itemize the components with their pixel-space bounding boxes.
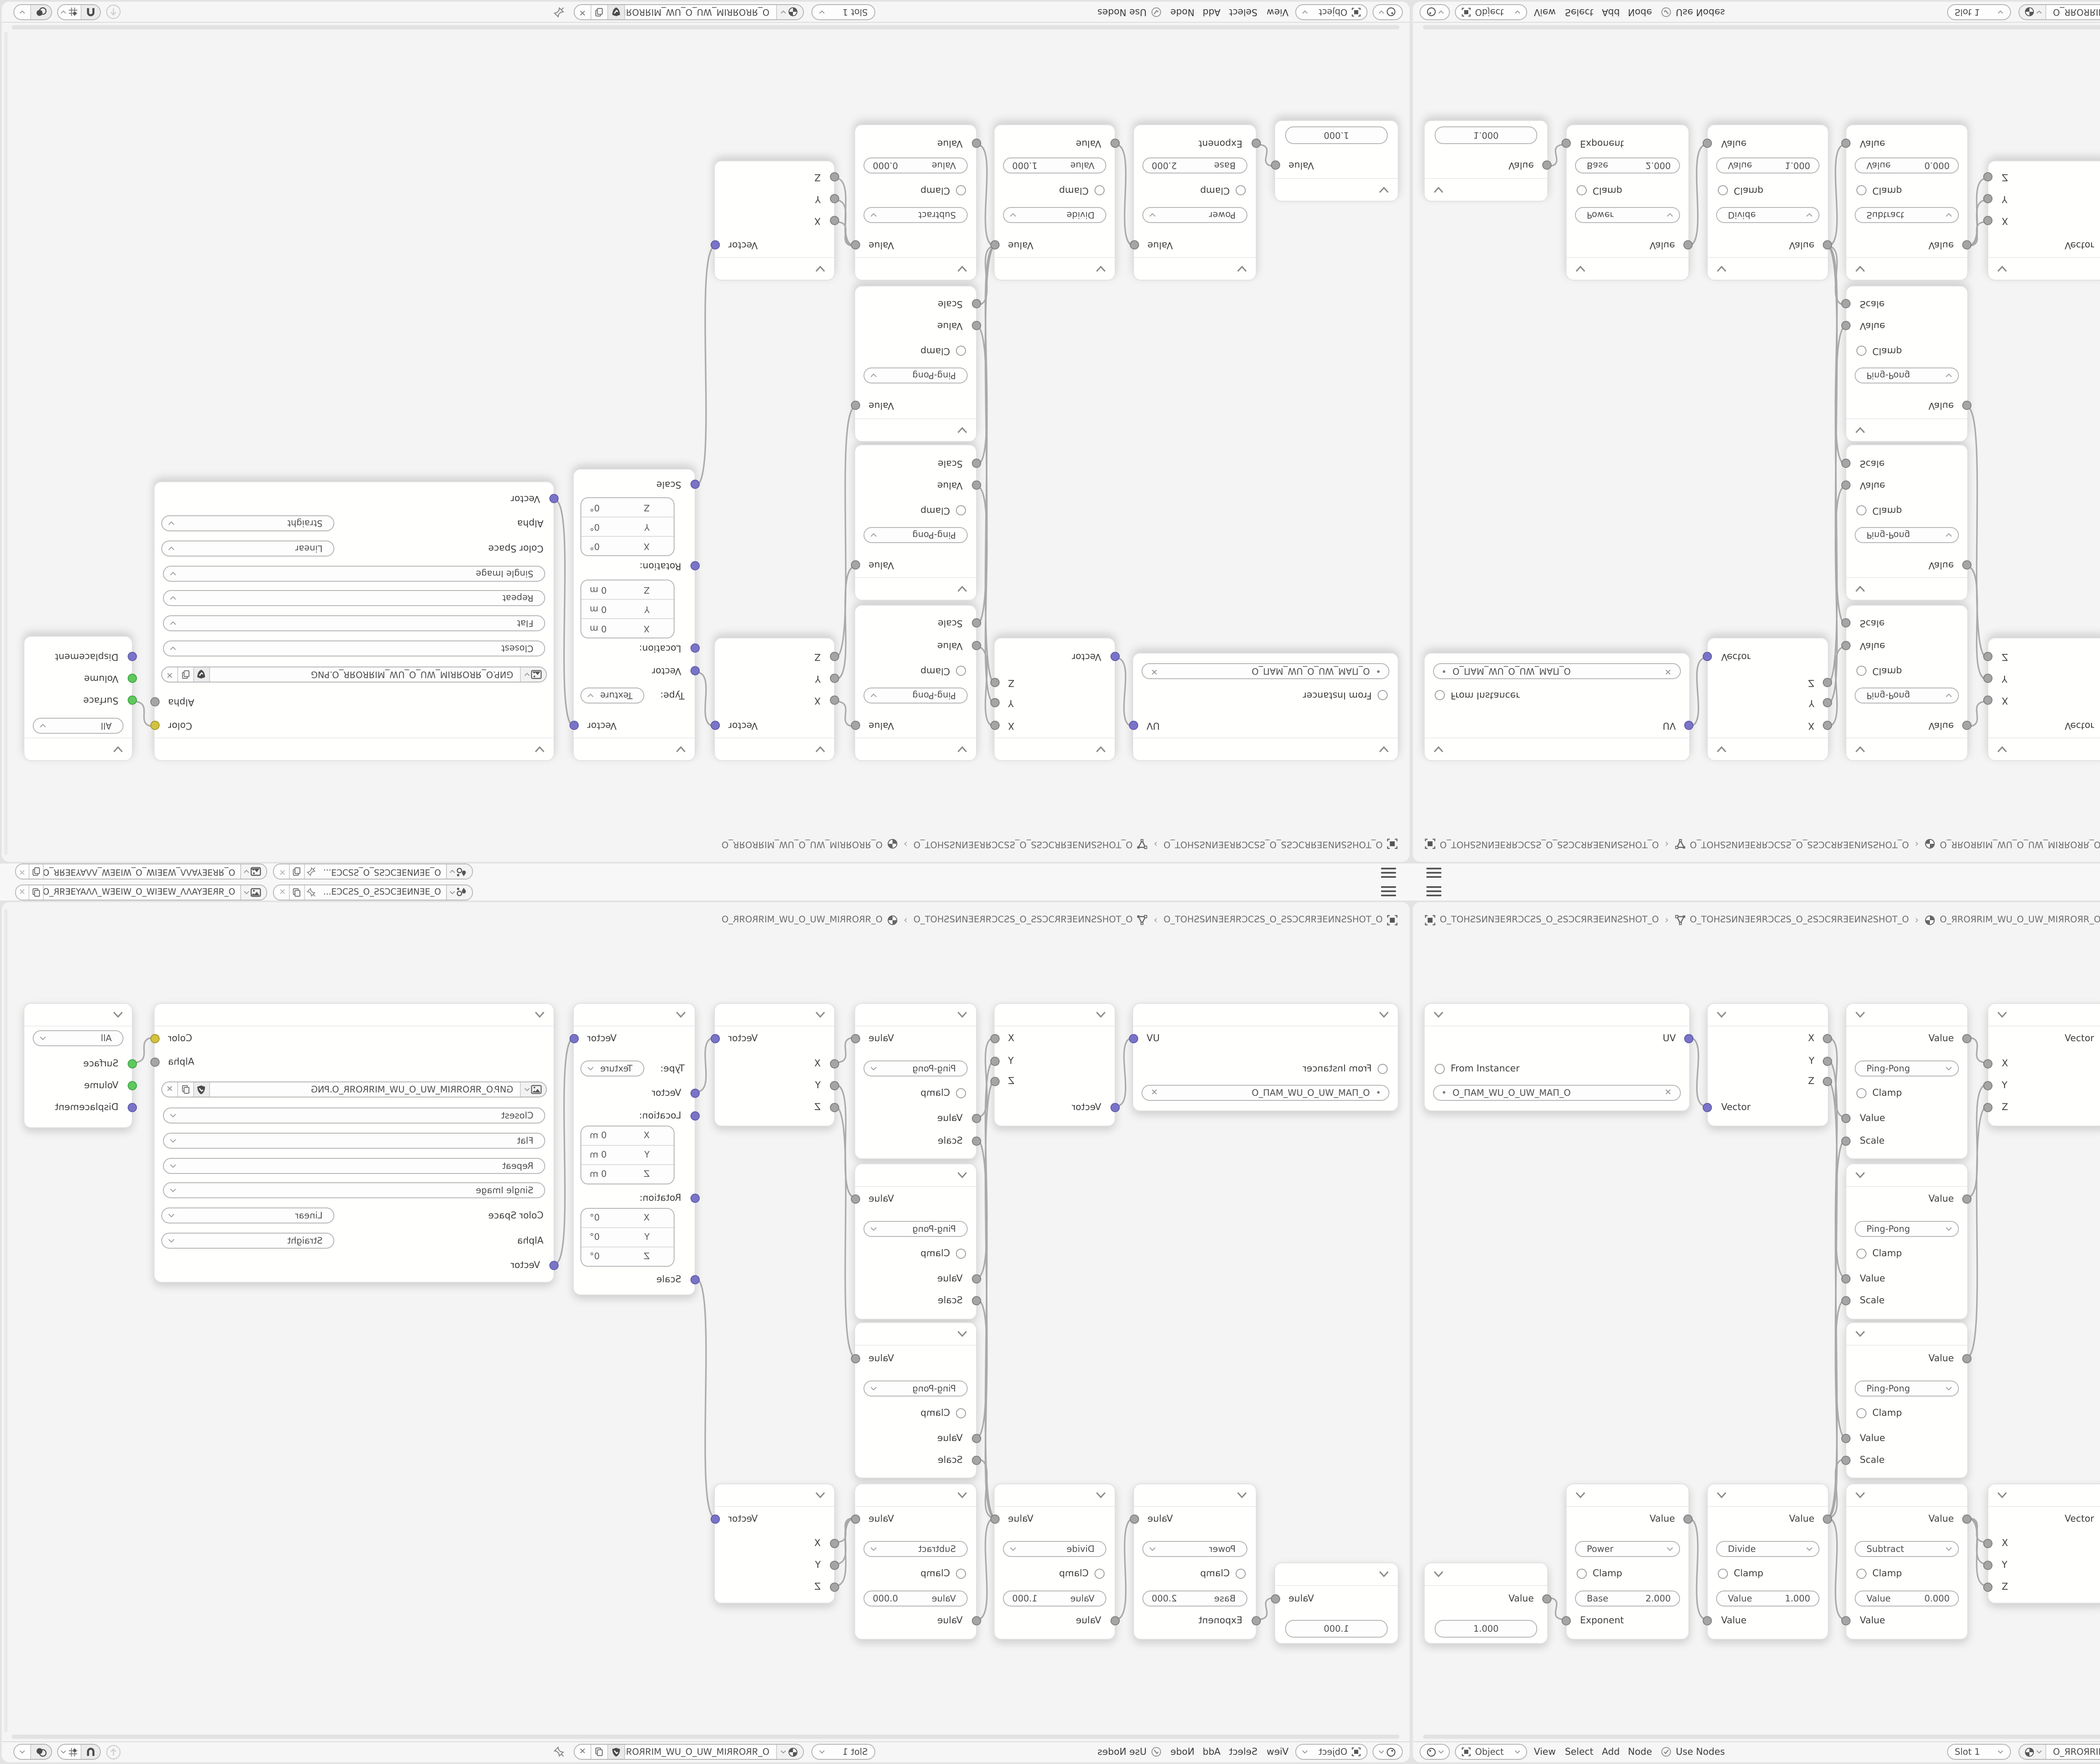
- breadcrumb-object[interactable]: O_TOHƧSИNƎEЯRƆCƧS_O_ƧSƆCЯRƎEИNƧSHOT_O: [913, 914, 1148, 925]
- node-header[interactable]: [155, 1004, 554, 1026]
- node-header[interactable]: [995, 1484, 1115, 1507]
- uv-map-node[interactable]: UVFrom Instancer•O_ΠAM_WU_O_UW_MAΠ_O✕: [1424, 653, 1690, 761]
- separate-xyz-node[interactable]: XYZVector: [1707, 1003, 1829, 1126]
- separate-xyz-node[interactable]: XYZVector: [994, 1003, 1116, 1126]
- material-icon[interactable]: [776, 1745, 803, 1759]
- unlink-icon[interactable]: ✕: [162, 667, 178, 682]
- vector-input-socket[interactable]: [549, 1260, 559, 1270]
- collapse-chevron-icon[interactable]: [957, 265, 968, 272]
- vector-output-socket[interactable]: [711, 241, 720, 250]
- value-output-socket[interactable]: [851, 1034, 860, 1043]
- menu-select[interactable]: Select: [1229, 1744, 1257, 1760]
- from-instancer-radio[interactable]: From Instancer: [1435, 1063, 1520, 1074]
- material-icon[interactable]: [2019, 5, 2046, 19]
- material-output-node[interactable]: AllSurfaceVolumeDisplacement: [24, 636, 133, 761]
- node-header[interactable]: [1567, 1484, 1688, 1507]
- radio-circle-icon[interactable]: [1856, 666, 1866, 676]
- pin-icon[interactable]: [305, 865, 318, 879]
- value-output-socket[interactable]: [1962, 1194, 1971, 1203]
- mode-dropdown[interactable]: Object: [1295, 1744, 1368, 1760]
- x-input-socket[interactable]: [1983, 216, 1992, 226]
- value-field[interactable]: 1.000: [1285, 1620, 1388, 1638]
- enum-dropdown[interactable]: Subtract: [864, 207, 968, 223]
- scale-input-socket[interactable]: [690, 480, 700, 489]
- scale-input-socket[interactable]: [1841, 619, 1851, 628]
- uv-map-node[interactable]: UVFrom Instancer•O_ΠAM_WU_O_UW_MAΠ_O✕: [1424, 1003, 1690, 1111]
- value-input-socket[interactable]: [1703, 1616, 1712, 1625]
- scene-selector[interactable]: O_ƎEИNƎEƆCƧS_O_ƧSƆCƎ... ✕: [273, 884, 473, 900]
- location-input-socket[interactable]: [690, 1111, 700, 1120]
- value-output-socket[interactable]: [990, 241, 1000, 250]
- math-power-node[interactable]: ValuePowerClampBase2.000Exponent: [1133, 124, 1257, 281]
- collapse-chevron-icon[interactable]: [1095, 265, 1106, 272]
- collapse-chevron-icon[interactable]: [957, 1172, 968, 1179]
- value-node[interactable]: Value1.000: [1424, 1562, 1548, 1644]
- image-icon[interactable]: [520, 1082, 546, 1097]
- value-input-socket[interactable]: [1841, 481, 1851, 490]
- node-header[interactable]: [1708, 1004, 1828, 1026]
- math-pingpong-node-1[interactable]: ValuePing-PongClampValueScale: [854, 605, 977, 761]
- value-value-field[interactable]: Value0.000: [1855, 1591, 1959, 1606]
- node-header[interactable]: [855, 1323, 976, 1346]
- shield-icon[interactable]: [608, 5, 625, 19]
- collapse-chevron-icon[interactable]: [1433, 1011, 1444, 1018]
- enum-dropdown[interactable]: Single Image: [163, 566, 545, 582]
- uv-map-selector[interactable]: •O_ΠAM_WU_O_UW_MAΠ_O✕: [1433, 663, 1681, 679]
- math-pingpong-node-1[interactable]: ValuePing-PongClampValueScale: [1845, 605, 1968, 761]
- axis-value-field[interactable]: Y0°: [581, 517, 674, 537]
- x-input-socket[interactable]: [830, 216, 839, 226]
- radio-circle-icon[interactable]: [1856, 346, 1866, 356]
- value-input-socket[interactable]: [972, 641, 981, 651]
- collapse-chevron-icon[interactable]: [1433, 1571, 1444, 1578]
- node-header[interactable]: [1846, 1164, 1967, 1187]
- radio-circle-icon[interactable]: [1856, 1248, 1866, 1258]
- image-icon[interactable]: [520, 667, 546, 682]
- radio-circle-icon[interactable]: [1718, 1568, 1728, 1578]
- enum-dropdown[interactable]: Linear: [161, 541, 334, 556]
- node-header[interactable]: [1134, 257, 1256, 280]
- radio-circle-icon[interactable]: [956, 1408, 966, 1418]
- slot-dropdown[interactable]: Slot 1: [811, 1744, 875, 1760]
- menu-icon[interactable]: [1426, 886, 1441, 896]
- menu-select[interactable]: Select: [1565, 1744, 1593, 1760]
- material-output-node[interactable]: AllSurfaceVolumeDisplacement: [24, 1003, 133, 1128]
- snap-grid-icon[interactable]: [58, 1747, 81, 1757]
- node-header[interactable]: [1275, 178, 1398, 201]
- value-input-socket[interactable]: [972, 139, 981, 148]
- mode-dropdown[interactable]: Object: [1295, 4, 1368, 20]
- value-input-socket[interactable]: [972, 481, 981, 490]
- value-output-socket[interactable]: [1683, 241, 1693, 250]
- collapse-chevron-icon[interactable]: [1378, 1571, 1389, 1578]
- axis-value-field[interactable]: Z0 m: [581, 580, 674, 600]
- horizontal-scrollbar[interactable]: [12, 25, 1399, 29]
- enum-dropdown[interactable]: Flat: [163, 1133, 545, 1149]
- enum-dropdown[interactable]: Ping-Pong: [864, 1060, 968, 1076]
- enum-dropdown[interactable]: Straight: [161, 1233, 334, 1249]
- node-header[interactable]: [1708, 738, 1828, 760]
- enum-dropdown[interactable]: Ping-Pong: [864, 688, 968, 703]
- vertical-scrollbar[interactable]: [4, 909, 8, 1732]
- collapse-chevron-icon[interactable]: [1997, 265, 2008, 272]
- clamp-radio[interactable]: Clamp: [1059, 185, 1105, 196]
- material-icon[interactable]: [776, 5, 803, 19]
- node-header[interactable]: [1133, 738, 1398, 760]
- menu-add[interactable]: Add: [1602, 4, 1620, 20]
- value-input-socket[interactable]: [1110, 139, 1120, 148]
- scale-input-socket[interactable]: [972, 1296, 981, 1305]
- x-output-socket[interactable]: [990, 721, 1000, 730]
- node-header[interactable]: [1846, 577, 1967, 600]
- math-subtract-node[interactable]: ValueSubtractClampValue0.000Value: [854, 1483, 977, 1640]
- collapse-chevron-icon[interactable]: [815, 1492, 826, 1499]
- parent-tree-icon[interactable]: [106, 4, 121, 20]
- enum-dropdown[interactable]: All: [33, 1030, 123, 1046]
- breadcrumb-material[interactable]: O_ЯROЯRIM_WU_O_UW_MIЯROЯR_O: [1925, 914, 2100, 925]
- node-header[interactable]: [1988, 1484, 2100, 1507]
- value-output-socket[interactable]: [851, 1194, 860, 1203]
- editor-type-button[interactable]: [1420, 1744, 1450, 1760]
- collapse-chevron-icon[interactable]: [1378, 186, 1389, 193]
- enum-dropdown[interactable]: Subtract: [1855, 207, 1959, 223]
- enum-dropdown[interactable]: Ping-Pong: [1855, 527, 1959, 543]
- vector-input-socket[interactable]: [1110, 1102, 1120, 1112]
- node-header[interactable]: [1846, 418, 1967, 441]
- vector-output-socket[interactable]: [570, 721, 579, 730]
- breadcrumb-object[interactable]: O_TOHƧSИNƎEЯRƆCƧS_O_ƧSƆCЯRƎEИNƧSHOT_O: [913, 839, 1148, 850]
- value-output-socket[interactable]: [1271, 1594, 1280, 1603]
- z-input-socket[interactable]: [1983, 652, 1992, 661]
- collapse-chevron-icon[interactable]: [957, 1331, 968, 1337]
- math-power-node[interactable]: ValuePowerClampBase2.000Exponent: [1566, 1483, 1689, 1640]
- xyz-value-stack[interactable]: X0°Y0°Z0°: [580, 1208, 675, 1267]
- vector-output-socket[interactable]: [570, 1034, 579, 1043]
- enum-dropdown[interactable]: Repeat: [163, 590, 545, 606]
- copy-icon[interactable]: [290, 865, 305, 879]
- math-divide-node[interactable]: ValueDivideClampValue1.000Value: [994, 124, 1116, 281]
- value-output-socket[interactable]: [851, 721, 860, 730]
- y-input-socket[interactable]: [830, 674, 839, 683]
- value-output-socket[interactable]: [1271, 161, 1280, 170]
- radio-circle-icon[interactable]: [1435, 1063, 1445, 1074]
- node-header[interactable]: [574, 738, 695, 760]
- menu-view[interactable]: View: [1534, 1744, 1556, 1760]
- clamp-radio[interactable]: Clamp: [1856, 1087, 1902, 1098]
- value-value-field[interactable]: Value1.000: [1003, 157, 1106, 173]
- node-header[interactable]: [855, 738, 976, 760]
- uv-map-node[interactable]: UVFrom Instancer•O_ΠAM_WU_O_UW_MAΠ_O✕: [1132, 653, 1399, 761]
- node-header[interactable]: [24, 738, 132, 760]
- collapse-chevron-icon[interactable]: [1716, 265, 1727, 272]
- breadcrumb-material[interactable]: O_ЯROЯRIM_WU_O_UW_MIЯROЯR_O: [722, 914, 898, 925]
- clamp-radio[interactable]: Clamp: [921, 666, 966, 677]
- math-pingpong-node-3[interactable]: ValuePing-PongClampValueScale: [854, 1322, 977, 1478]
- menu-view[interactable]: View: [1267, 1744, 1289, 1760]
- clamp-radio[interactable]: Clamp: [921, 505, 966, 516]
- value-output-socket[interactable]: [1130, 241, 1139, 250]
- enum-dropdown[interactable]: Linear: [161, 1207, 334, 1223]
- radio-circle-icon[interactable]: [1095, 1568, 1105, 1578]
- collapse-chevron-icon[interactable]: [534, 1011, 545, 1018]
- from-instancer-radio[interactable]: From Instancer: [1303, 1063, 1388, 1074]
- radio-circle-icon[interactable]: [1435, 690, 1445, 701]
- use-nodes-checkbox[interactable]: Use Nodes: [1661, 1744, 1725, 1760]
- view-layer-selector[interactable]: O_ЯRƎEYAΛΛ_WƎEIW_O_WIƎEW_ΛΛAYƎEЯR_O ✕: [15, 864, 267, 880]
- collapse-chevron-icon[interactable]: [1716, 1492, 1727, 1499]
- clear-icon[interactable]: ✕: [1142, 1088, 1158, 1097]
- node-header[interactable]: [1708, 1484, 1828, 1507]
- value-field[interactable]: 1.000: [1435, 1620, 1537, 1638]
- enum-dropdown[interactable]: Divide: [1716, 1541, 1819, 1557]
- radio-circle-icon[interactable]: [956, 666, 966, 676]
- axis-value-field[interactable]: Z0°: [581, 1247, 674, 1266]
- overlap-circles-icon[interactable]: [30, 1745, 51, 1759]
- vertical-scrollbar[interactable]: [4, 32, 8, 855]
- node-header[interactable]: [1988, 738, 2100, 760]
- exponent-input-socket[interactable]: [1562, 139, 1571, 148]
- radio-circle-icon[interactable]: [1095, 186, 1105, 196]
- clamp-radio[interactable]: Clamp: [1059, 1568, 1105, 1579]
- menu-icon[interactable]: [1426, 868, 1441, 878]
- pin-icon[interactable]: [554, 4, 564, 20]
- editor-type-button[interactable]: [1373, 4, 1403, 20]
- view-layer-name[interactable]: O_ЯRƎEYAΛΛ_WƎEIW_O_WIƎEW_ΛΛAYƎEЯR_O: [44, 885, 240, 899]
- node-header[interactable]: [1846, 1323, 1967, 1346]
- node-header[interactable]: [995, 257, 1115, 280]
- shield-icon[interactable]: [608, 1745, 625, 1759]
- z-input-socket[interactable]: [830, 1582, 839, 1591]
- collapse-chevron-icon[interactable]: [1855, 1011, 1866, 1018]
- clear-icon[interactable]: ✕: [1664, 1088, 1680, 1097]
- unlink-icon[interactable]: ✕: [276, 865, 290, 879]
- shield-icon[interactable]: [194, 667, 210, 682]
- x-input-socket[interactable]: [1983, 696, 1992, 705]
- y-input-socket[interactable]: [1983, 1081, 1992, 1090]
- collapse-chevron-icon[interactable]: [1236, 1492, 1247, 1499]
- enum-dropdown[interactable]: Divide: [1003, 1541, 1106, 1557]
- enum-dropdown[interactable]: Ping-Pong: [1855, 367, 1959, 383]
- value-output-socket[interactable]: [990, 1514, 1000, 1523]
- enum-dropdown[interactable]: Ping-Pong: [864, 367, 968, 383]
- value-input-socket[interactable]: [972, 1616, 981, 1625]
- radio-circle-icon[interactable]: [1856, 1408, 1866, 1418]
- value-output-socket[interactable]: [851, 1354, 860, 1363]
- collapse-chevron-icon[interactable]: [534, 746, 545, 753]
- clamp-radio[interactable]: Clamp: [1856, 346, 1902, 357]
- node-header[interactable]: [995, 1004, 1115, 1026]
- material-datablock-selector[interactable]: O_ЯROЯRIM_WU_O_UW_MIЯROЯR_O ✕: [2019, 1744, 2100, 1760]
- from-instancer-radio[interactable]: From Instancer: [1435, 690, 1520, 701]
- math-power-node[interactable]: ValuePowerClampBase2.000Exponent: [1133, 1483, 1257, 1640]
- radio-circle-icon[interactable]: [1856, 1568, 1866, 1578]
- x-input-socket[interactable]: [830, 1538, 839, 1548]
- math-pingpong-node-2[interactable]: ValuePing-PongClampValueScale: [1845, 1163, 1968, 1320]
- collapse-chevron-icon[interactable]: [1997, 1011, 2008, 1018]
- scale-input-socket[interactable]: [1841, 1136, 1851, 1145]
- value-input-socket[interactable]: [1841, 1433, 1851, 1443]
- clamp-radio[interactable]: Clamp: [921, 1248, 966, 1259]
- copy-icon[interactable]: [591, 1745, 608, 1759]
- collapse-chevron-icon[interactable]: [1855, 585, 1866, 592]
- value-value-field[interactable]: Value0.000: [864, 1591, 968, 1606]
- surface-input-socket[interactable]: [128, 696, 137, 705]
- unlink-icon[interactable]: ✕: [16, 865, 29, 879]
- value-value-field[interactable]: Value1.000: [1716, 1591, 1819, 1606]
- mode-dropdown[interactable]: Object: [1455, 1744, 1527, 1760]
- slot-dropdown[interactable]: Slot 1: [811, 4, 875, 20]
- node-header[interactable]: [855, 418, 976, 441]
- collapse-chevron-icon[interactable]: [957, 1492, 968, 1499]
- node-header[interactable]: [995, 738, 1115, 760]
- math-pingpong-node-1[interactable]: ValuePing-PongClampValueScale: [854, 1003, 977, 1159]
- vector-input-socket[interactable]: [690, 667, 700, 676]
- scale-input-socket[interactable]: [972, 459, 981, 468]
- enum-dropdown[interactable]: All: [33, 718, 123, 734]
- breadcrumb-material[interactable]: O_ЯROЯRIM_WU_O_UW_MIЯROЯR_O: [722, 839, 898, 850]
- axis-value-field[interactable]: X0 m: [581, 619, 674, 638]
- z-input-socket[interactable]: [830, 652, 839, 661]
- scale-input-socket[interactable]: [1841, 299, 1851, 309]
- math-pingpong-node-2[interactable]: ValuePing-PongClampValueScale: [854, 1163, 977, 1320]
- value-output-socket[interactable]: [1962, 241, 1971, 250]
- radio-circle-icon[interactable]: [1378, 1063, 1388, 1074]
- scene-name[interactable]: O_ƎEИNƎEƆCƧS_O_ƧSƆCƎ...: [318, 885, 446, 899]
- collapse-chevron-icon[interactable]: [1433, 186, 1444, 193]
- collapse-chevron-icon[interactable]: [675, 1011, 686, 1018]
- collapse-chevron-icon[interactable]: [675, 746, 686, 753]
- volume-input-socket[interactable]: [128, 1081, 137, 1090]
- image-filename[interactable]: GИP.O_ЯROЯRIM_WU_O_UW_MIЯROЯR_O.PNG: [210, 667, 520, 682]
- horizontal-scrollbar[interactable]: [1423, 1735, 2100, 1739]
- z-output-socket[interactable]: [990, 678, 1000, 688]
- collapse-chevron-icon[interactable]: [1095, 1011, 1106, 1018]
- node-header[interactable]: [1988, 257, 2100, 280]
- clamp-radio[interactable]: Clamp: [1577, 1568, 1622, 1579]
- collapse-chevron-icon[interactable]: [1855, 1172, 1866, 1179]
- enum-dropdown[interactable]: Ping-Pong: [1855, 1221, 1959, 1237]
- vector-output-socket[interactable]: [711, 1034, 720, 1043]
- mode-dropdown[interactable]: Object: [1455, 4, 1527, 20]
- y-output-socket[interactable]: [1823, 698, 1832, 708]
- axis-value-field[interactable]: Y0 m: [581, 1145, 674, 1164]
- y-input-socket[interactable]: [1983, 674, 1992, 683]
- breadcrumb-object[interactable]: O_TOHƧSИNƎEЯRƆCƧS_O_ƧSƆCЯRƎEИNƧSHOT_O: [1675, 914, 1909, 925]
- editor-type-button[interactable]: [1420, 4, 1450, 20]
- enum-dropdown[interactable]: Ping-Pong: [864, 527, 968, 543]
- node-header[interactable]: [1988, 1004, 2100, 1026]
- node-header[interactable]: [1846, 1004, 1967, 1026]
- view-layer-name[interactable]: O_ЯRƎEYAΛΛ_WƎEIW_O_WIƎEW_ΛΛAYƎEЯR_O: [44, 865, 240, 879]
- collapse-chevron-icon[interactable]: [1236, 265, 1247, 272]
- value-value-field[interactable]: Value1.000: [1003, 1591, 1106, 1606]
- use-nodes-checkbox[interactable]: Use Nodes: [1097, 4, 1162, 20]
- combine-xyz-node-bottom[interactable]: VectorXYZ: [1987, 160, 2100, 281]
- node-header[interactable]: [1708, 257, 1828, 280]
- enum-dropdown[interactable]: Subtract: [864, 1541, 968, 1557]
- node-header[interactable]: [715, 257, 834, 280]
- view-layer-selector[interactable]: O_ЯRƎEYAΛΛ_WƎEIW_O_WIƎEW_ΛΛAYƎEЯR_O ✕: [15, 884, 267, 900]
- axis-value-field[interactable]: Y0 m: [581, 600, 674, 619]
- node-header[interactable]: [855, 1164, 976, 1187]
- enum-dropdown[interactable]: Power: [1142, 1541, 1247, 1557]
- mapping-node[interactable]: VectorType:TextureVectorLocation:X0 mY0 …: [573, 469, 696, 761]
- math-pingpong-node-3[interactable]: ValuePing-PongClampValueScale: [854, 286, 977, 442]
- value-input-socket[interactable]: [1841, 1113, 1851, 1123]
- rotation-input-socket[interactable]: [690, 1193, 700, 1202]
- scale-input-socket[interactable]: [972, 1455, 981, 1465]
- image-texture-node[interactable]: ColorAlphaGИP.O_ЯROЯRIM_WU_O_UW_MIЯROЯR_…: [154, 1003, 554, 1283]
- image-texture-node[interactable]: ColorAlphaGИP.O_ЯROЯRIM_WU_O_UW_MIЯROЯR_…: [154, 481, 554, 761]
- node-header[interactable]: [1425, 738, 1689, 760]
- scale-input-socket[interactable]: [972, 299, 981, 309]
- value-output-socket[interactable]: [1962, 561, 1971, 570]
- node-header[interactable]: [1567, 257, 1688, 280]
- node-header[interactable]: [1846, 738, 1967, 760]
- snap-magnet-icon[interactable]: [81, 5, 100, 19]
- menu-add[interactable]: Add: [1202, 1744, 1221, 1760]
- x-input-socket[interactable]: [1983, 1059, 1992, 1068]
- value-node[interactable]: Value1.000: [1424, 120, 1548, 202]
- enum-dropdown[interactable]: Flat: [163, 615, 545, 631]
- menu-view[interactable]: View: [1534, 4, 1556, 20]
- menu-add[interactable]: Add: [1202, 4, 1221, 20]
- breadcrumb-scene[interactable]: O_TOHƧSИNƎEЯRƆCƧS_O_ƧSƆCЯRƎEИNƧSHOT_O: [1425, 914, 1659, 925]
- collapse-chevron-icon[interactable]: [815, 746, 826, 753]
- node-header[interactable]: [1133, 1004, 1398, 1026]
- copy-icon[interactable]: [591, 5, 608, 19]
- y-input-socket[interactable]: [830, 1560, 839, 1570]
- copy-icon[interactable]: [290, 885, 305, 899]
- clamp-radio[interactable]: Clamp: [921, 185, 966, 196]
- y-output-socket[interactable]: [990, 698, 1000, 708]
- shield-icon[interactable]: [194, 1082, 210, 1097]
- scale-input-socket[interactable]: [1841, 1455, 1851, 1465]
- material-name[interactable]: O_ЯROЯRIM_WU_O_UW_MIЯROЯR_O: [2046, 1747, 2100, 1757]
- collapse-chevron-icon[interactable]: [1095, 1492, 1106, 1499]
- color-output-socket[interactable]: [150, 1034, 160, 1043]
- value-output-socket[interactable]: [1683, 1514, 1693, 1523]
- z-input-socket[interactable]: [1983, 1582, 1992, 1591]
- uv-map-selector[interactable]: •O_ΠAM_WU_O_UW_MAΠ_O✕: [1142, 663, 1389, 679]
- node-header[interactable]: [574, 1004, 695, 1026]
- vector-output-socket[interactable]: [711, 721, 720, 730]
- radio-circle-icon[interactable]: [956, 186, 966, 196]
- scale-input-socket[interactable]: [972, 619, 981, 628]
- radio-circle-icon[interactable]: [956, 346, 966, 356]
- value-input-socket[interactable]: [972, 1433, 981, 1443]
- combine-xyz-node-bottom[interactable]: VectorXYZ: [1987, 1483, 2100, 1604]
- collapse-chevron-icon[interactable]: [957, 585, 968, 592]
- scene-selector[interactable]: O_ƎEИNƎEƆCƧS_O_ƧSƆCƎ... ✕: [273, 864, 473, 880]
- enum-dropdown[interactable]: Ping-Pong: [1855, 1381, 1959, 1396]
- collapse-chevron-icon[interactable]: [113, 746, 123, 753]
- node-header[interactable]: [855, 1484, 976, 1507]
- clamp-radio[interactable]: Clamp: [1200, 185, 1246, 196]
- copy-icon[interactable]: [178, 1082, 194, 1097]
- clamp-radio[interactable]: Clamp: [1856, 1248, 1902, 1259]
- enum-dropdown[interactable]: Ping-Pong: [864, 1221, 968, 1237]
- node-header[interactable]: [715, 738, 834, 760]
- collapse-chevron-icon[interactable]: [113, 1011, 123, 1018]
- radio-circle-icon[interactable]: [956, 506, 966, 516]
- value-output-socket[interactable]: [1962, 1354, 1971, 1363]
- separate-xyz-node[interactable]: XYZVector: [994, 638, 1116, 761]
- menu-select[interactable]: Select: [1229, 4, 1257, 20]
- radio-circle-icon[interactable]: [1718, 186, 1728, 196]
- location-input-socket[interactable]: [690, 644, 700, 653]
- y-output-socket[interactable]: [1823, 1056, 1832, 1066]
